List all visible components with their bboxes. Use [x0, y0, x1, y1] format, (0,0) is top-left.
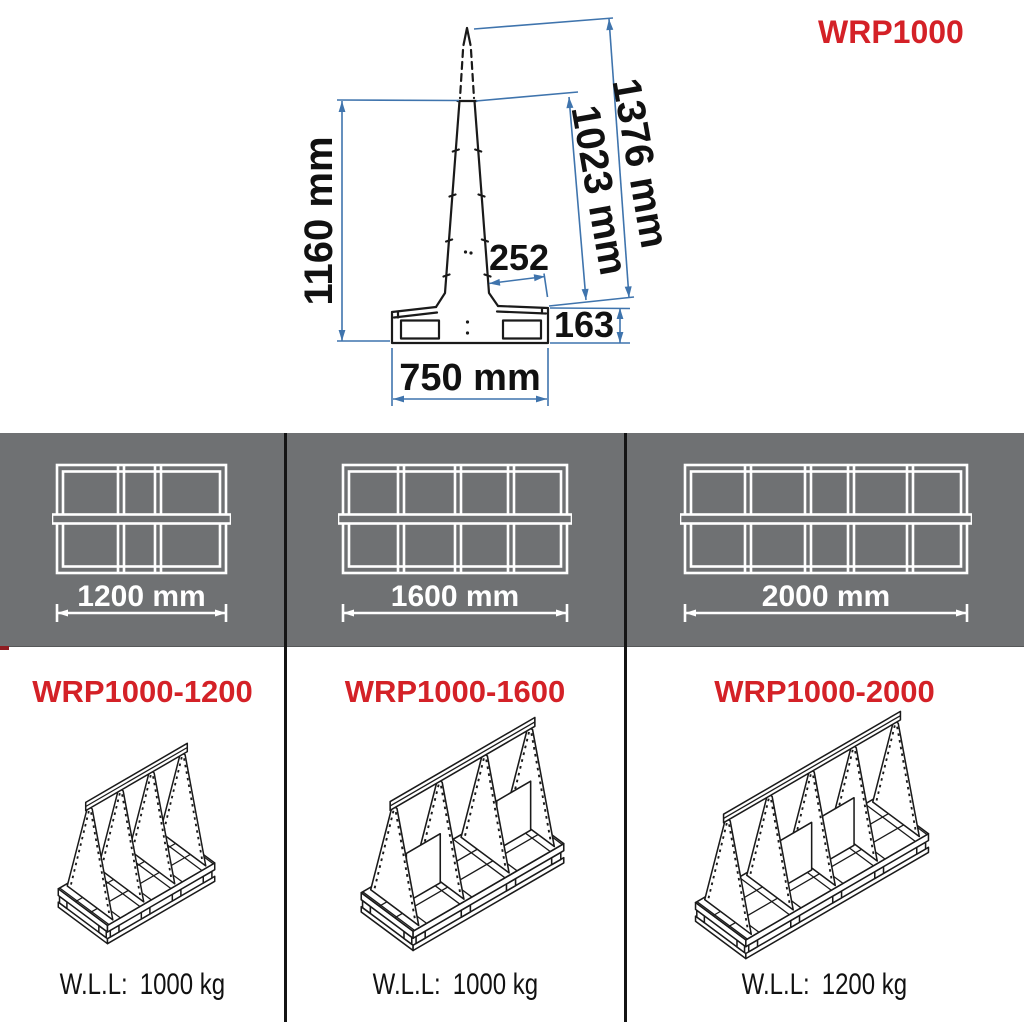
wll-label: W.L.L: — [742, 968, 810, 1002]
top-view-1600: 1600 mm — [338, 455, 572, 630]
red-dash-mark — [0, 646, 9, 650]
top-view-2000-width-label: 2000 mm — [762, 580, 890, 613]
dim-upright-height-label: 1160 mm — [297, 136, 341, 305]
top-view-1200: 1200 mm — [52, 455, 231, 630]
side-view-technical-drawing: 1160 mm 1023 mm 1376 mm 252 163 750 mm — [0, 0, 1024, 433]
isometric-rack-1200 — [44, 740, 229, 947]
wll-value: 1000 kg — [140, 968, 225, 1002]
wll-value: 1200 kg — [822, 968, 907, 1002]
product-title-2000: WRP1000-2000 — [625, 674, 1024, 710]
product-title-1600: WRP1000-1600 — [285, 674, 625, 710]
wll-row-1200: W.L.L: 1000 kg — [0, 968, 285, 1002]
page-title: WRP1000 — [818, 14, 964, 51]
top-view-1200-width-label: 1200 mm — [77, 580, 205, 613]
wll-row-1600: W.L.L: 1000 kg — [285, 968, 625, 1002]
dim-top-width-label: 252 — [489, 237, 549, 278]
product-title-1200: WRP1000-1200 — [0, 674, 285, 710]
top-view-2000: 2000 mm — [680, 455, 972, 630]
wll-value: 1000 kg — [452, 968, 537, 1002]
column-divider-1 — [284, 433, 287, 1022]
top-view-1600-width-label: 1600 mm — [391, 580, 519, 613]
column-divider-2 — [624, 433, 627, 1022]
wll-label: W.L.L: — [60, 968, 128, 1002]
isometric-rack-2000 — [672, 708, 952, 962]
dim-base-height-label: 163 — [554, 304, 614, 345]
catalog-page: { "title": "WRP1000", "side_view": { "di… — [0, 0, 1024, 1024]
a-frame-profile-drawing — [392, 28, 548, 343]
wll-label: W.L.L: — [372, 968, 440, 1002]
wll-row-2000: W.L.L: 1200 kg — [625, 968, 1024, 1002]
isometric-rack-1600 — [345, 714, 580, 954]
dim-base-width-label: 750 mm — [399, 357, 541, 399]
